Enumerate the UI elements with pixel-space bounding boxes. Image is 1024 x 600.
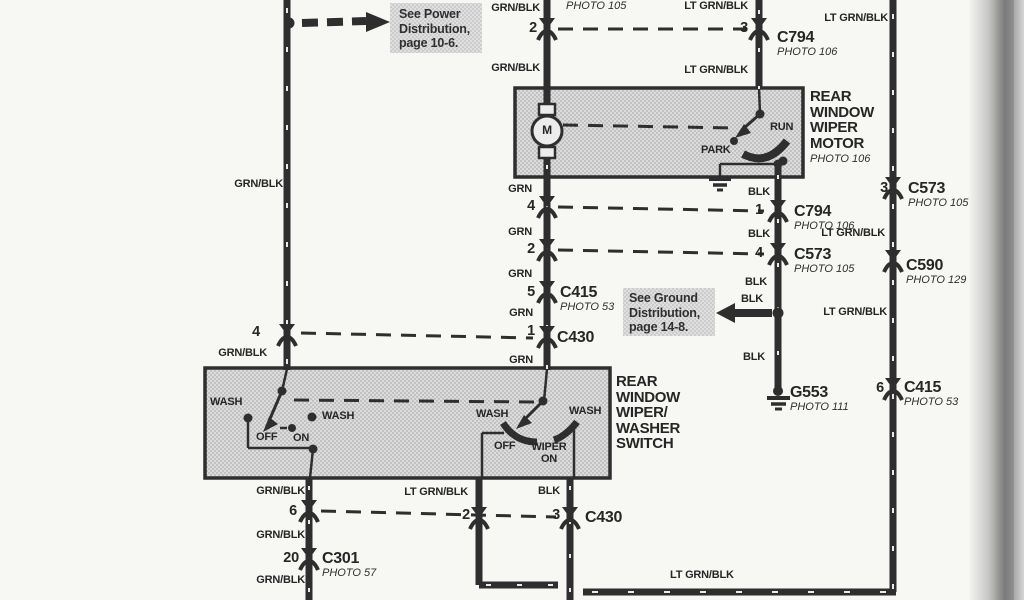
wire-label-grn: GRN <box>502 268 532 280</box>
connector-name-c794: C794 <box>794 203 831 221</box>
link-c430-mid <box>301 333 533 338</box>
connector-name-c573: C573 <box>908 180 945 198</box>
wire-label-grn: GRN <box>503 354 533 366</box>
wire-label-grn: GRN <box>503 307 533 319</box>
ground-arrow-head <box>716 303 735 323</box>
g553-ground-icon <box>767 386 790 409</box>
wash-label: WASH <box>476 408 508 420</box>
connector-name-c415: C415 <box>904 379 941 397</box>
wire-label-blk: BLK <box>735 351 765 363</box>
wire-label-grn: GRN <box>502 183 532 195</box>
component-name-wiper-washer-switch: REAR WINDOW WIPER/ WASHER SWITCH <box>616 374 680 452</box>
connector-name-c794: C794 <box>777 29 814 47</box>
connector-name-c301: C301 <box>322 550 359 568</box>
wire-label-ltgrnblk: LT GRN/BLK <box>660 64 748 76</box>
off-label: OFF <box>256 431 277 443</box>
photo-ref: PHOTO 57 <box>322 567 376 579</box>
photo-ref: PHOTO 53 <box>560 301 614 313</box>
wash-label: WASH <box>322 410 354 422</box>
photo-ref: PHOTO 111 <box>790 401 849 413</box>
pin-number: 4 <box>509 199 535 215</box>
connector-name-c430: C430 <box>585 509 622 527</box>
pin-number: 5 <box>509 285 535 301</box>
page-edge-shadow <box>968 0 1014 600</box>
photo-ref: PHOTO 106 <box>810 153 870 165</box>
pin-number: 3 <box>534 508 560 524</box>
wash-label: WASH <box>210 396 242 408</box>
power-arrow-shaft <box>302 21 366 23</box>
motor-terminal <box>539 147 555 158</box>
link-c794-mid <box>558 207 764 211</box>
wire-label-ltgrnblk: LT GRN/BLK <box>380 486 468 498</box>
wire-label-blk: BLK <box>737 276 767 288</box>
component-name-wiper-motor: REAR WINDOW WIPER MOTOR <box>810 89 874 151</box>
wire-label-grnblk: GRN/BLK <box>223 178 283 190</box>
pin-number: 6 <box>271 504 297 520</box>
junction-dot <box>284 18 295 29</box>
pin-number: 4 <box>737 246 763 262</box>
wire-label-ltgrnblk: LT GRN/BLK <box>660 0 748 12</box>
pin-number: 3 <box>724 21 748 37</box>
wire-label-grnblk: GRN/BLK <box>245 485 305 497</box>
power-arrow-head <box>366 12 390 32</box>
pin-number: 2 <box>509 242 535 258</box>
photo-ref: PHOTO 105 <box>794 263 854 275</box>
wire-label-ltgrnblk: LT GRN/BLK <box>797 227 885 239</box>
wire-label-grn: GRN <box>502 226 532 238</box>
link-c430-bottom <box>321 511 556 517</box>
wire-label-blk: BLK <box>530 485 560 497</box>
photo-ref-partial: PHOTO 105 <box>566 0 626 12</box>
on-label: ON <box>293 432 309 444</box>
wire-label-grnblk: GRN/BLK <box>245 529 305 541</box>
wire-label-blk: BLK <box>740 186 770 198</box>
run-label: RUN <box>770 121 793 133</box>
link-c573-mid <box>558 250 764 254</box>
wire-label-grnblk: GRN/BLK <box>245 574 305 586</box>
wire-label-ltgrnblk: LT GRN/BLK <box>670 569 734 581</box>
page-edge <box>1014 0 1024 600</box>
photo-ref: PHOTO 129 <box>906 274 966 286</box>
park-label: PARK <box>701 144 731 156</box>
pin-number: 20 <box>269 551 299 567</box>
pin-number: 2 <box>444 508 470 524</box>
motor-case-ground-icon <box>709 179 731 190</box>
pin-number: 6 <box>858 381 884 397</box>
connector-name-c415: C415 <box>560 284 597 302</box>
wire-label-grnblk: GRN/BLK <box>460 62 540 74</box>
photo-ref: PHOTO 106 <box>777 46 837 58</box>
pin-number: 2 <box>513 21 537 37</box>
connector-name-c430: C430 <box>557 329 594 347</box>
wire-label-ltgrnblk: LT GRN/BLK <box>799 306 887 318</box>
photo-ref: PHOTO 105 <box>908 197 968 209</box>
off-label: OFF <box>494 440 515 452</box>
pin-number: 1 <box>737 203 763 219</box>
pin-number: 3 <box>862 181 888 197</box>
connector-name-c573: C573 <box>794 246 831 264</box>
connector-name-c590: C590 <box>906 257 943 275</box>
motor-terminal <box>539 104 555 115</box>
pin-number: 1 <box>509 324 535 340</box>
wiring-diagram-page: See Power Distribution, page 10-6. See G… <box>0 0 1024 600</box>
motor-letter: M <box>540 124 554 137</box>
junction-dot <box>773 308 784 319</box>
wire-label-ltgrnblk: LT GRN/BLK <box>800 12 888 24</box>
ground-distribution-callout: See Ground Distribution, page 14-8. <box>629 291 700 335</box>
wire-label-blk: BLK <box>733 293 763 305</box>
photo-ref: PHOTO 53 <box>904 396 958 408</box>
wiper-on-label: WIPER ON <box>526 441 572 465</box>
wire-label-blk: BLK <box>740 228 770 240</box>
ground-name-g553: G553 <box>790 384 828 402</box>
pin-number: 4 <box>234 325 260 341</box>
wash-label: WASH <box>569 405 601 417</box>
wire-label-grnblk: GRN/BLK <box>207 347 267 359</box>
wire-label-grnblk: GRN/BLK <box>460 2 540 14</box>
